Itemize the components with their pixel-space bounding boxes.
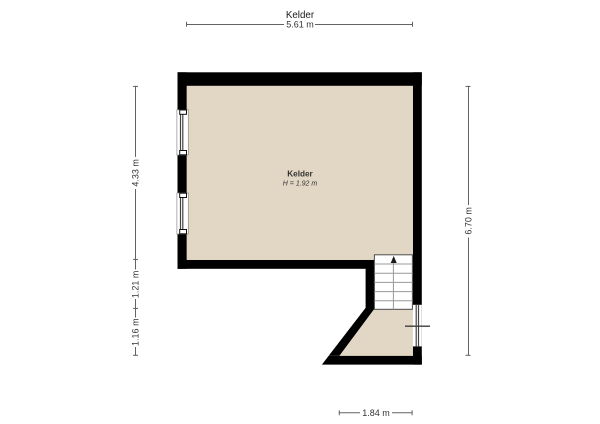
svg-text:6.70 m: 6.70 m: [464, 207, 474, 235]
svg-text:5.61 m: 5.61 m: [286, 20, 314, 30]
svg-text:1.21 m: 1.21 m: [131, 271, 141, 299]
svg-text:1.16 m: 1.16 m: [131, 318, 141, 346]
svg-text:Kelder: Kelder: [287, 170, 313, 179]
svg-text:H = 1.92 m: H = 1.92 m: [283, 181, 318, 188]
svg-text:4.33 m: 4.33 m: [131, 159, 141, 187]
svg-text:1.84 m: 1.84 m: [362, 408, 390, 418]
